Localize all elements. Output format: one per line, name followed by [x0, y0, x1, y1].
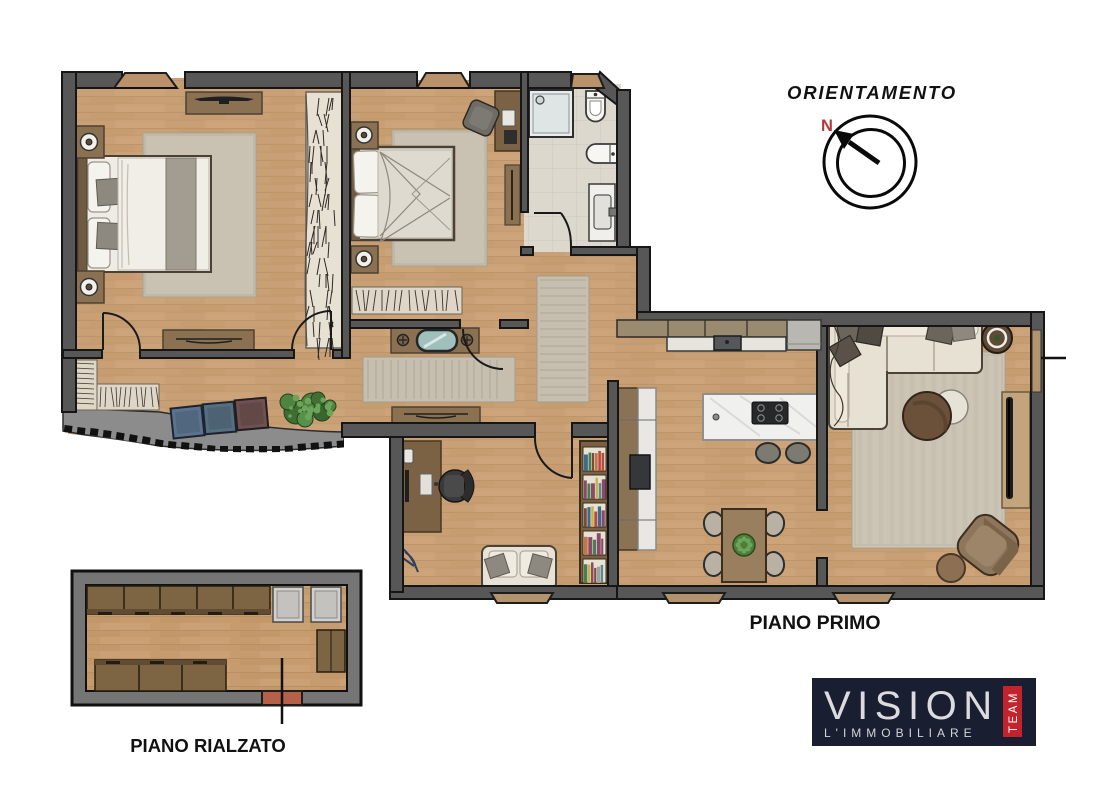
svg-text:ORIENTAMENTO: ORIENTAMENTO [787, 82, 957, 103]
svg-text:PIANO RIALZATO: PIANO RIALZATO [130, 735, 286, 756]
svg-text:PIANO PRIMO: PIANO PRIMO [749, 612, 880, 634]
svg-text:L'IMMOBILIARE: L'IMMOBILIARE [824, 726, 977, 740]
svg-text:TEAM: TEAM [1008, 691, 1020, 733]
svg-text:N: N [821, 117, 833, 135]
svg-text:VISION: VISION [824, 684, 999, 728]
